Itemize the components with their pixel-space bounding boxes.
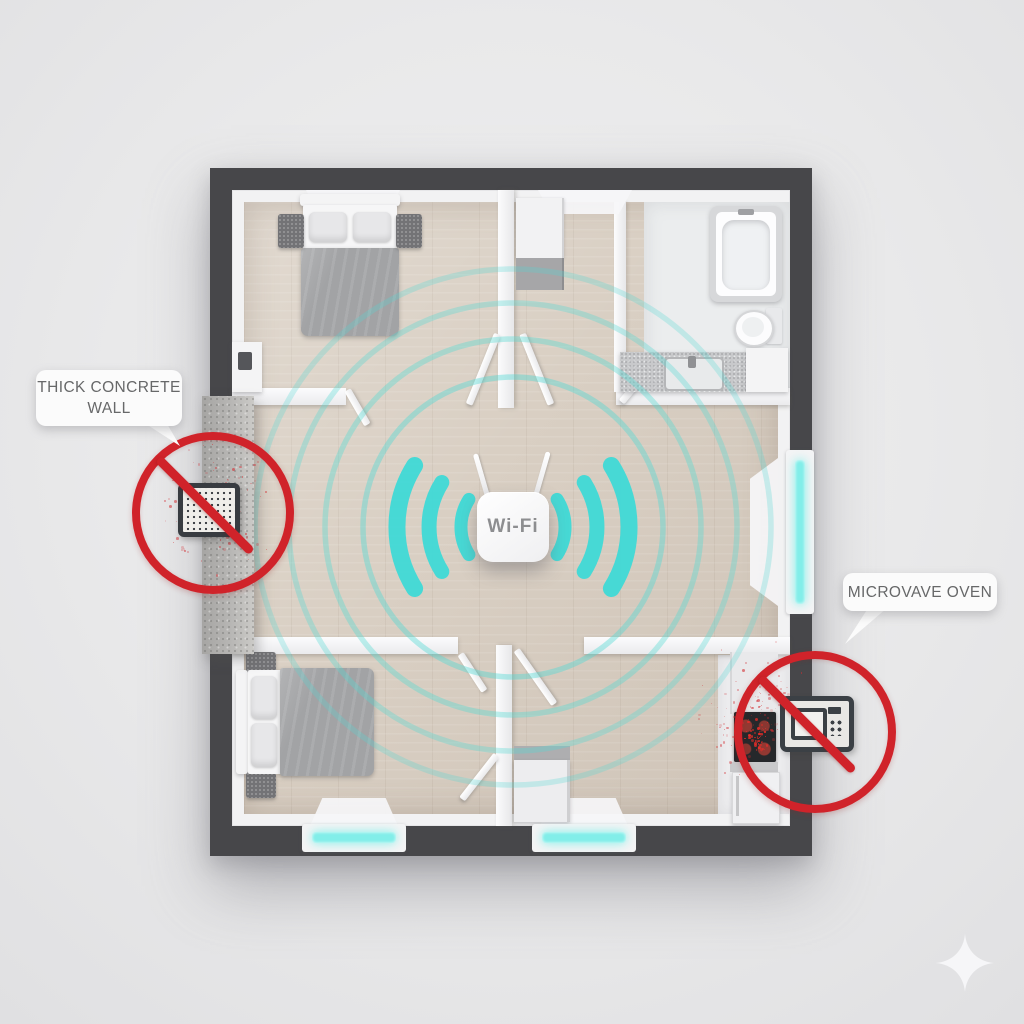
window-sill [750, 458, 778, 606]
bed-headboard [236, 670, 248, 774]
bed-pillow [251, 676, 277, 719]
nightstand-rug [278, 214, 304, 248]
bed-pillow [309, 212, 347, 242]
callout-text: MICROVAVE OVEN [848, 582, 993, 603]
bed-pillow [251, 723, 277, 767]
callout-tail [845, 608, 887, 644]
bathroom-cabinet [746, 348, 788, 392]
window-glass [312, 832, 396, 843]
wifi-router-icon: Wi-Fi [477, 492, 549, 562]
toilet-seat [742, 317, 764, 337]
nightstand-rug [396, 214, 422, 248]
callout-thick-concrete-wall: THICK CONCRETE WALL [36, 370, 182, 426]
bed-blanket [280, 668, 374, 776]
bathtub-faucet [738, 209, 754, 215]
interior-wall-top-center [498, 190, 514, 408]
cabinet-top [516, 198, 564, 258]
cabinet-top-front [516, 258, 564, 290]
callout-text-line2: WALL [87, 398, 130, 419]
cabinet-bottom-top [514, 746, 570, 760]
window-glass [542, 832, 626, 843]
callout-text-line1: THICK CONCRETE [37, 377, 180, 398]
sink-faucet [688, 356, 696, 368]
four-point-star-icon [936, 934, 994, 992]
bathtub-basin [722, 220, 770, 290]
bed-pillow [353, 212, 391, 242]
callout-microwave-oven: MICROVAVE OVEN [843, 573, 997, 611]
cabinet-bottom [514, 760, 570, 822]
nightstand-rug [246, 772, 276, 798]
illustration-canvas: Wi-Fi THICK CONCRETE WALL MICROVAVE OVEN [0, 0, 1024, 1024]
window-glass [795, 460, 805, 604]
router-label: Wi-Fi [487, 516, 538, 538]
bed-blanket [301, 248, 399, 336]
dresser-item [238, 352, 252, 370]
interior-wall-bottom-center [496, 645, 512, 826]
window-sill [310, 798, 398, 826]
